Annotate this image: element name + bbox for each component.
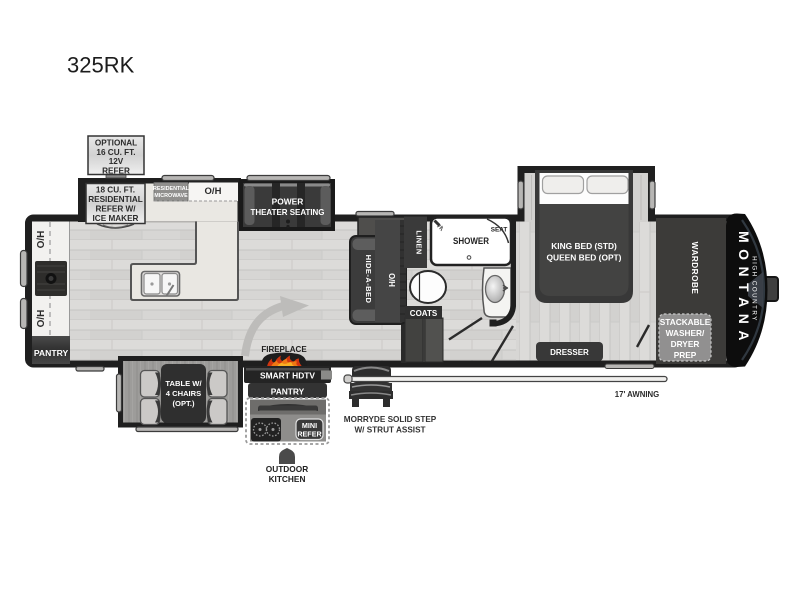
svg-text:O/H: O/H (36, 310, 47, 328)
svg-text:RESIDENTIAL: RESIDENTIAL (153, 186, 190, 192)
svg-text:MORRYDE SOLID STEP: MORRYDE SOLID STEP (344, 415, 437, 424)
svg-text:RESIDENTIAL: RESIDENTIAL (88, 195, 143, 204)
svg-text:POWER: POWER (272, 197, 304, 207)
svg-text:O/H: O/H (205, 186, 222, 197)
svg-text:325RK: 325RK (67, 53, 135, 78)
svg-text:16 CU. FT.: 16 CU. FT. (96, 148, 135, 157)
svg-text:4 CHAIRS: 4 CHAIRS (166, 389, 201, 398)
svg-text:WARDROBE: WARDROBE (690, 242, 699, 295)
svg-text:QUEEN BED (OPT): QUEEN BED (OPT) (547, 253, 622, 263)
svg-text:LINEN: LINEN (415, 230, 424, 254)
svg-text:12V: 12V (109, 157, 124, 166)
svg-text:HIDE-A-BED: HIDE-A-BED (364, 255, 373, 304)
svg-text:HIGH COUNTRY: HIGH COUNTRY (751, 256, 758, 322)
svg-text:PANTRY: PANTRY (271, 387, 305, 397)
svg-text:DRESSER: DRESSER (550, 348, 589, 357)
svg-text:REFER: REFER (297, 430, 322, 439)
svg-text:O/H: O/H (387, 273, 396, 287)
svg-text:WASHER/: WASHER/ (666, 328, 705, 338)
svg-text:O/H: O/H (36, 231, 47, 249)
svg-text:COATS: COATS (410, 309, 438, 318)
svg-text:STACKABLE: STACKABLE (660, 317, 711, 327)
svg-text:MICROWAVE: MICROWAVE (154, 193, 188, 199)
svg-text:17' AWNING: 17' AWNING (615, 390, 659, 399)
svg-text:W/ STRUT ASSIST: W/ STRUT ASSIST (354, 426, 425, 435)
svg-text:THEATER SEATING: THEATER SEATING (251, 207, 325, 217)
svg-text:REFER: REFER (102, 166, 130, 175)
svg-text:OUTDOOR: OUTDOOR (266, 464, 308, 474)
svg-text:SHOWER: SHOWER (453, 236, 489, 246)
svg-text:SMART HDTV: SMART HDTV (260, 371, 315, 381)
svg-text:KING BED (STD): KING BED (STD) (551, 241, 617, 251)
svg-text:ICE MAKER: ICE MAKER (93, 214, 139, 223)
svg-text:PREP: PREP (674, 350, 697, 360)
svg-text:KITCHEN: KITCHEN (269, 474, 306, 484)
svg-text:DRYER: DRYER (671, 339, 700, 349)
svg-text:OPTIONAL: OPTIONAL (95, 139, 137, 148)
svg-text:TABLE W/: TABLE W/ (165, 379, 202, 388)
svg-text:REFER W/: REFER W/ (95, 205, 136, 214)
svg-text:18 CU. FT.: 18 CU. FT. (96, 186, 135, 195)
svg-text:MONTANA: MONTANA (736, 231, 752, 347)
svg-text:(OPT.): (OPT.) (173, 399, 195, 408)
svg-text:PANTRY: PANTRY (34, 348, 69, 358)
